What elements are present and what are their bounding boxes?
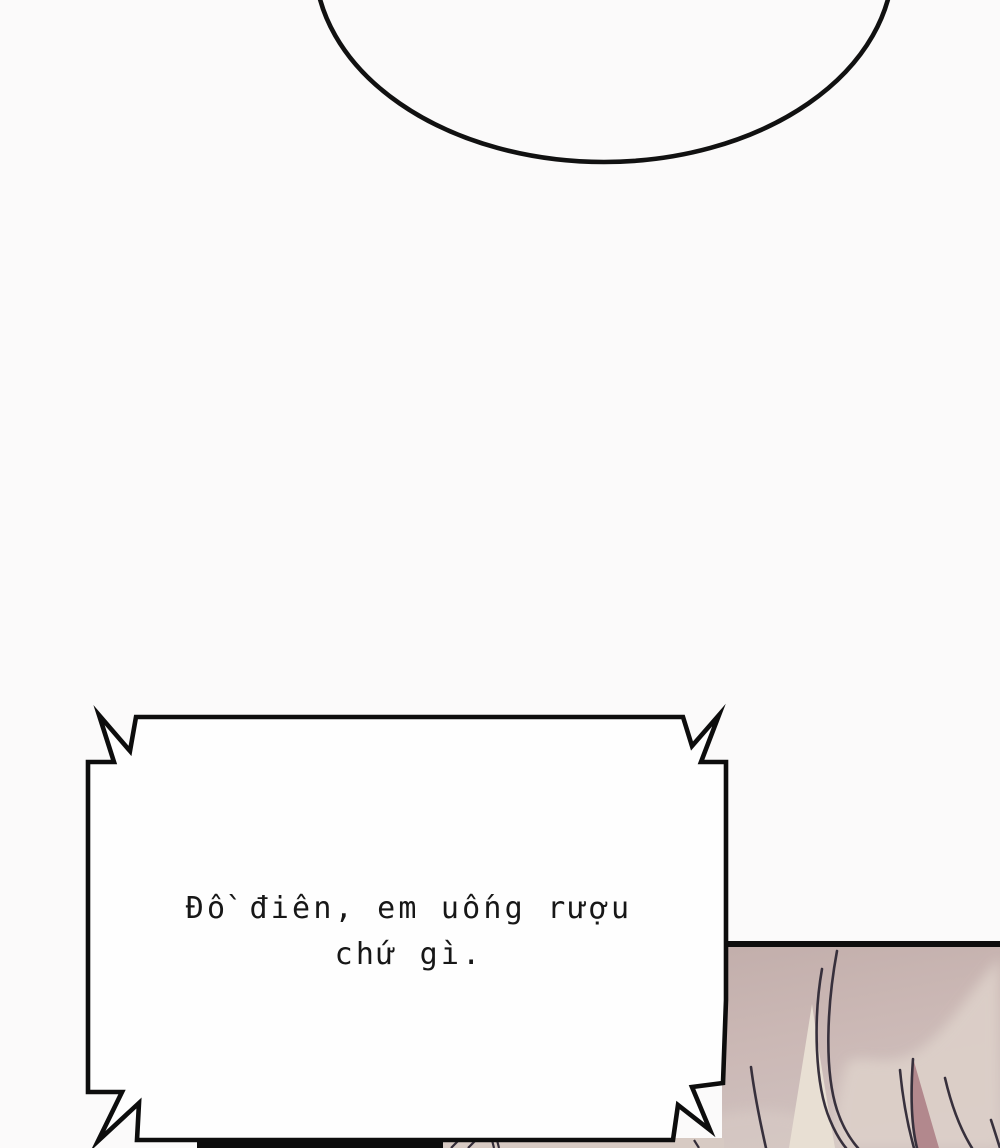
dialogue-line-2: chứ gì.	[335, 937, 484, 972]
comic-page: Đồ điên, em uống rượu chứ gì.	[0, 0, 1000, 1148]
dialogue-line-1: Đồ điên, em uống rượu	[186, 891, 633, 926]
shout-bubble	[88, 715, 726, 1141]
artwork-panel-border	[722, 941, 1000, 947]
comic-artwork: Đồ điên, em uống rượu chứ gì.	[0, 0, 1000, 1148]
